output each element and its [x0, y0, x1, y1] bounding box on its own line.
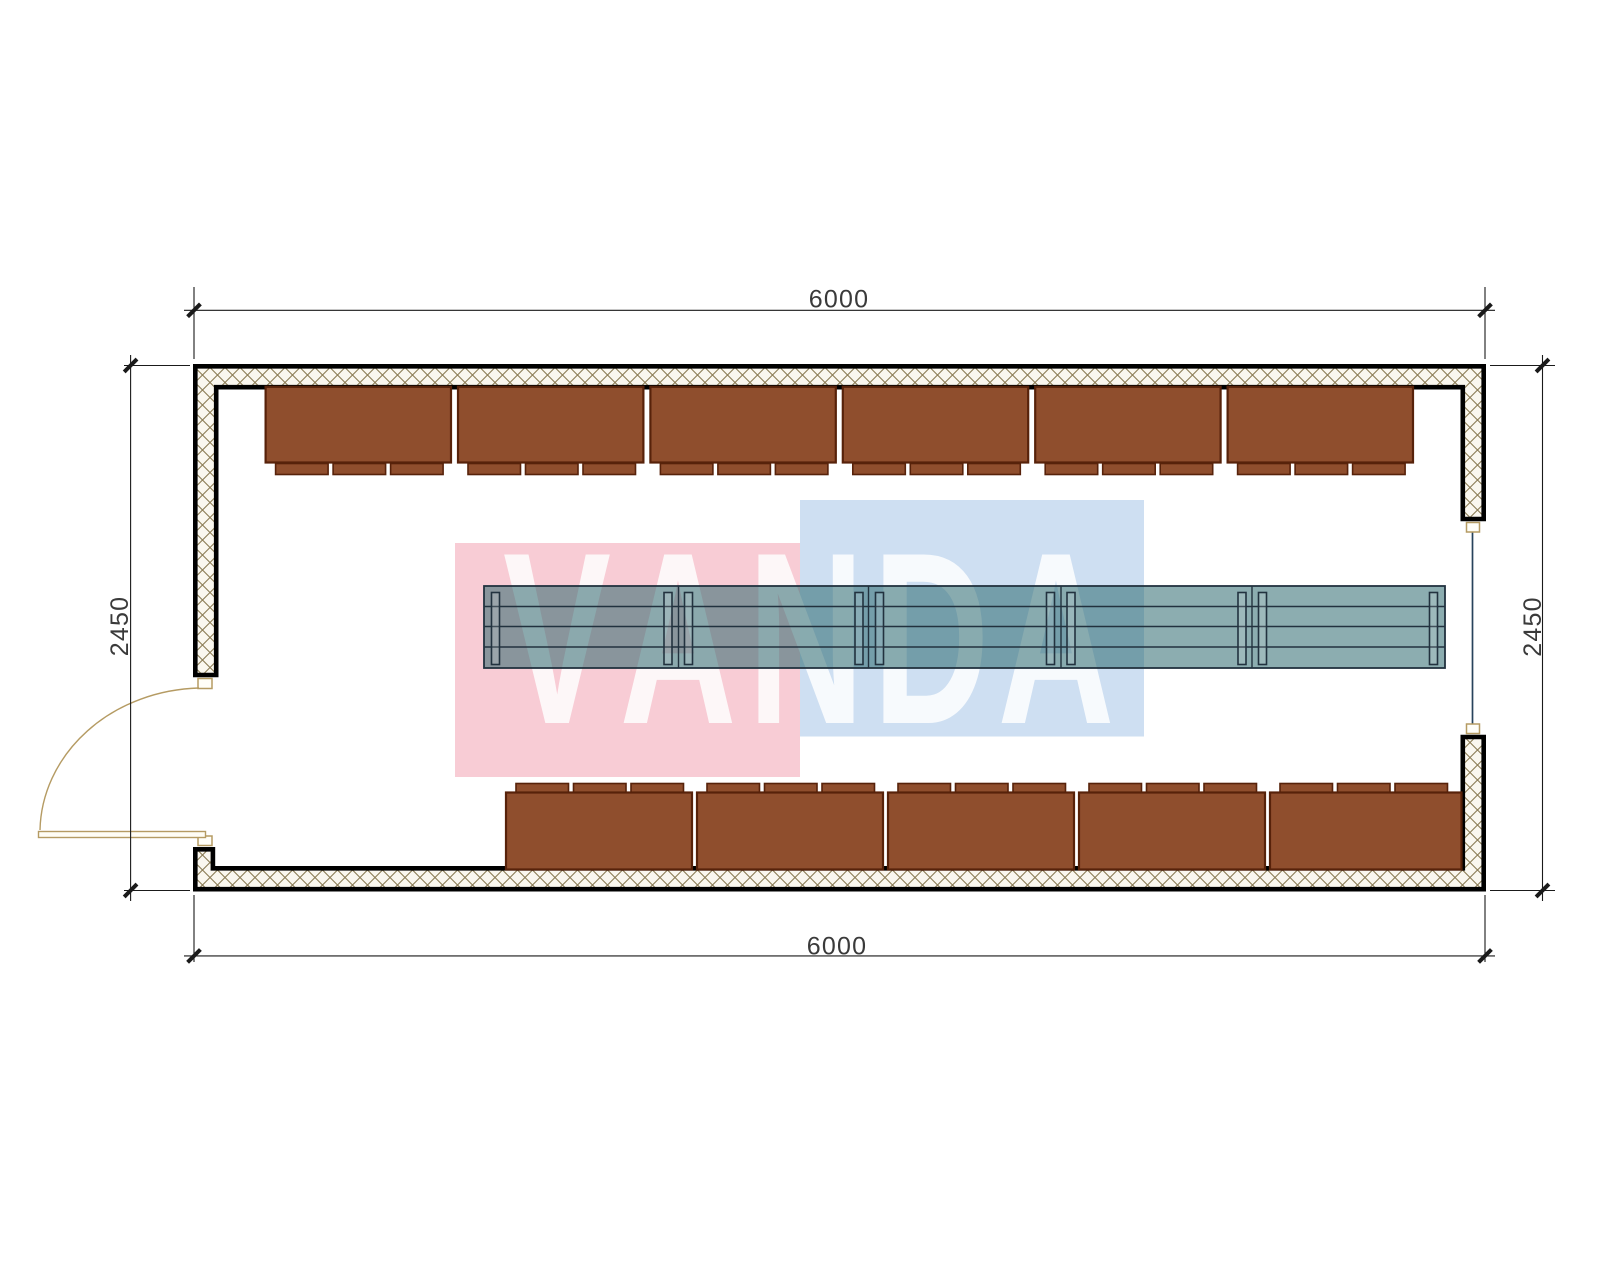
svg-text:6000: 6000 [807, 933, 867, 961]
svg-text:2450: 2450 [1519, 596, 1547, 656]
svg-text:6000: 6000 [809, 286, 869, 314]
svg-text:2450: 2450 [106, 596, 134, 656]
